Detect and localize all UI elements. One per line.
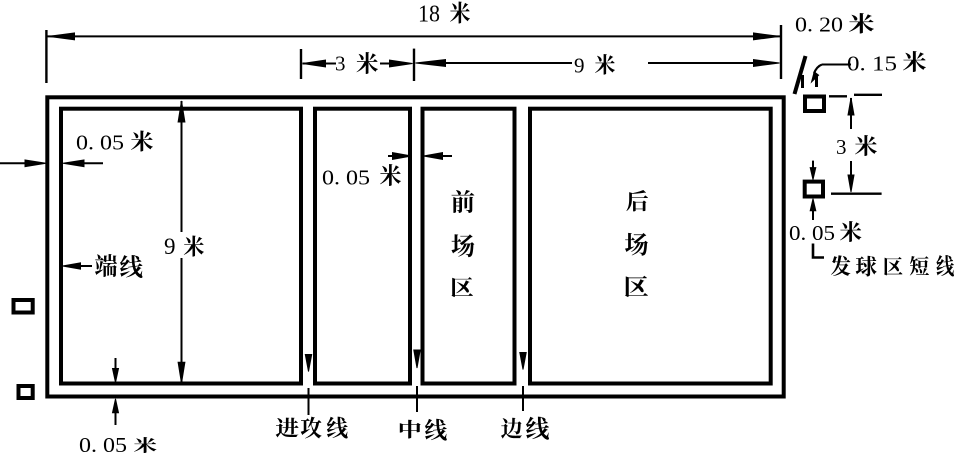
svg-text:0. 05: 0. 05	[789, 221, 835, 245]
svg-text:0. 05: 0. 05	[322, 166, 370, 190]
svg-text:3: 3	[335, 52, 346, 76]
svg-text:0. 20: 0. 20	[795, 13, 843, 37]
svg-text:3: 3	[836, 135, 847, 159]
svg-text:18: 18	[418, 2, 440, 28]
svg-text:0. 05: 0. 05	[76, 131, 124, 155]
svg-text:0. 05: 0. 05	[79, 433, 127, 455]
svg-text:9: 9	[164, 234, 176, 259]
svg-text:0. 15: 0. 15	[847, 52, 897, 76]
svg-text:9: 9	[574, 54, 585, 78]
